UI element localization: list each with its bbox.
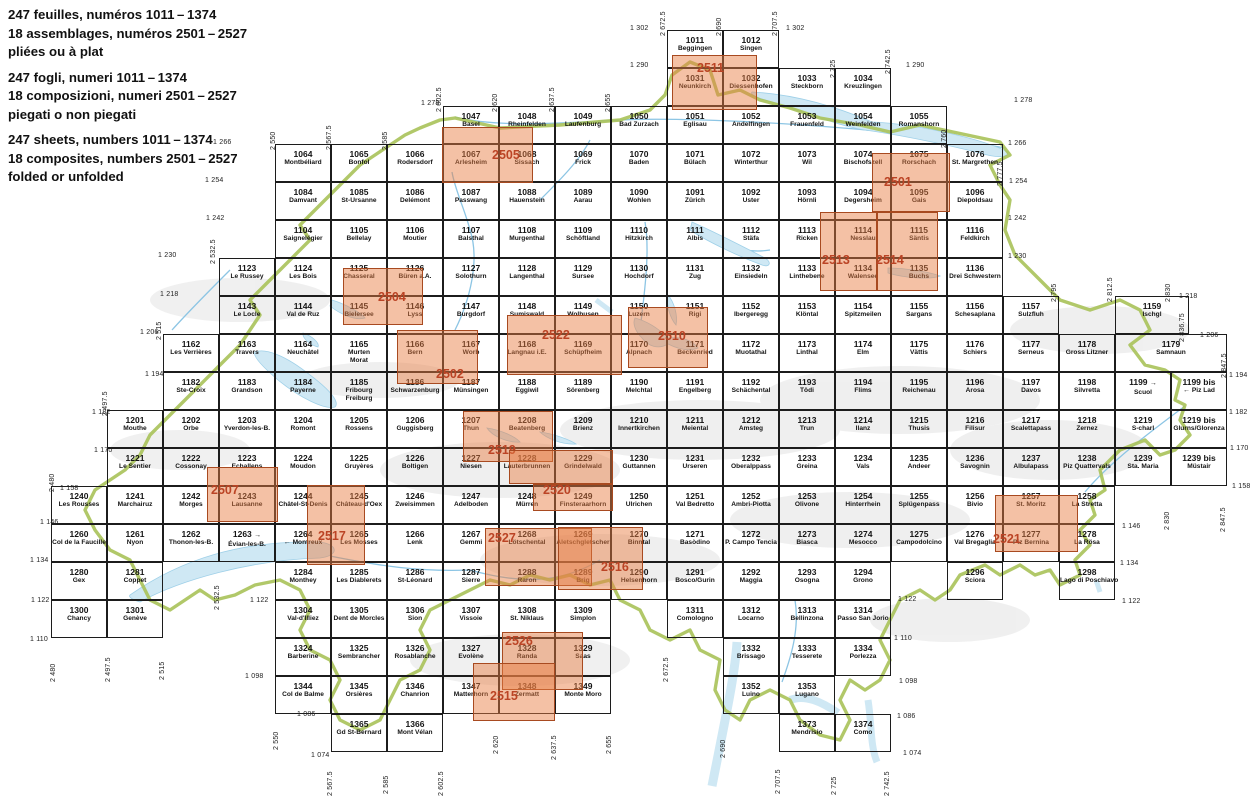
sheet-cell-1172: 1172Muotathal xyxy=(723,334,779,372)
sheet-number: 1326 xyxy=(388,643,442,653)
coordinate-label: 1 302 xyxy=(786,25,805,33)
composite-number-2515: 2515 xyxy=(490,690,518,702)
sheet-name: Dent de Morcles xyxy=(332,615,386,623)
sheet-cell-1353: 1353Lugano xyxy=(779,676,835,714)
sheet-number: 1284 xyxy=(276,567,330,577)
sheet-cell-1231: 1231Urseren xyxy=(667,448,723,486)
sheet-name: Zernez xyxy=(1060,425,1114,433)
sheet-number: 1144 xyxy=(276,301,330,311)
sheet-name: Guttannen xyxy=(612,463,666,471)
sheet-cell-1106: 1106Moutier xyxy=(387,220,443,258)
sheet-cell-1195: 1195Reichenau xyxy=(891,372,947,410)
sheet-name: Gruyères xyxy=(332,463,386,471)
sheet-cell-1206: 1206Guggisberg xyxy=(387,410,443,448)
sheet-number: 1231 xyxy=(668,453,722,463)
sheet-cell-1132: 1132Einsiedeln xyxy=(723,258,779,296)
legend-line: 247 fogli, numeri 1011 – 1374 xyxy=(8,69,318,88)
sheet-name: Mont Vélan xyxy=(388,729,442,737)
sheet-name: Scuol xyxy=(1116,389,1170,397)
sheet-cell-1174: 1174Elm xyxy=(835,334,891,372)
sheet-name: Wil xyxy=(780,159,834,167)
sheet-name: Val-d'Illiez xyxy=(276,615,330,623)
sheet-number: 1212 xyxy=(724,415,778,425)
sheet-cell-1211: 1211Meiental xyxy=(667,410,723,448)
sheet-number: 1256 xyxy=(948,491,1002,501)
sheet-cell-1192: 1192Schächental xyxy=(723,372,779,410)
coordinate-label: 2 515 xyxy=(159,661,167,680)
sheet-cell-1312: 1312Locarno xyxy=(723,600,779,638)
sheet-cell-1198: 1198Silvretta xyxy=(1059,372,1115,410)
sheet-number: 1237 xyxy=(1004,453,1058,463)
sheet-number: 1194 xyxy=(836,377,890,387)
sheet-cell-1128: 1128Langenthal xyxy=(499,258,555,296)
sheet-cell-1055: 1055Romanshorn xyxy=(891,106,947,144)
sheet-number: 1048 xyxy=(500,111,554,121)
sheet-name: Le Locle xyxy=(220,311,274,319)
sheet-number: 1089 xyxy=(556,187,610,197)
sheet-cell-1214: 1214Ilanz xyxy=(835,410,891,448)
sheet-name: Romont xyxy=(276,425,330,433)
sheet-name: Travers xyxy=(220,349,274,357)
sheet-name: Serneus xyxy=(1004,349,1058,357)
coordinate-label: 1 122 xyxy=(1122,598,1141,606)
sheet-name: Nyon xyxy=(108,539,162,547)
coordinate-label: 1 194 xyxy=(145,371,164,379)
sheet-cell-1105: 1105Bellelay xyxy=(331,220,387,258)
sheet-name: Les Bois xyxy=(276,273,330,281)
sheet-cell-1052: 1052Andelfingen xyxy=(723,106,779,144)
sheet-number: 1148 xyxy=(500,301,554,311)
sheet-name: Schesaplana xyxy=(948,311,1002,319)
sheet-cell-1178: 1178Gross Litzner xyxy=(1059,334,1115,372)
sheet-name: Silvretta xyxy=(1060,387,1114,395)
sheet-cell-1252: 1252Ambri-Piotta xyxy=(723,486,779,524)
sheet-name: Rossens xyxy=(332,425,386,433)
composite-2520 xyxy=(509,450,613,484)
sheet-cell-1176: 1176Schiers xyxy=(947,334,1003,372)
sheet-number: 1300 xyxy=(52,605,106,615)
sheet-number: 1304 xyxy=(276,605,330,615)
sheet-number: 1086 xyxy=(388,187,442,197)
sheet-name: Les Verrières xyxy=(164,349,218,357)
sheet-number: 1213 xyxy=(780,415,834,425)
sheet-name: MurtenMorat xyxy=(332,349,386,364)
sheet-name: Schächental xyxy=(724,387,778,395)
sheet-cell-1237: 1237Albulapass xyxy=(1003,448,1059,486)
coordinate-label: 2 532.5 xyxy=(210,239,218,264)
composite-number-2507: 2507 xyxy=(211,484,239,496)
coordinate-label: 1 122 xyxy=(898,596,917,604)
sheet-cell-1234: 1234Vals xyxy=(835,448,891,486)
sheet-name: Coppet xyxy=(108,577,162,585)
coordinate-label: 2 602.5 xyxy=(436,87,444,112)
sheet-number: 1365 xyxy=(332,719,386,729)
sheet-cell-1116: 1116Feldkirch xyxy=(947,220,1003,258)
sheet-number: 1218 xyxy=(1060,415,1114,425)
sheet-name: Évian-les-B. xyxy=(220,541,274,549)
coordinate-label: 1 134 xyxy=(1120,560,1139,568)
sheet-number: 1076 xyxy=(948,149,1002,159)
sheet-number: 1050 xyxy=(612,111,666,121)
sheet-cell-1129: 1129Sursee xyxy=(555,258,611,296)
sheet-number: 1162 xyxy=(164,339,218,349)
sheet-name: Beggingen xyxy=(668,45,722,53)
sheet-cell-1280: 1280Gex xyxy=(51,562,107,600)
sheet-cell-1076: 1076St. Margrethen xyxy=(947,144,1003,182)
sheet-number: 1154 xyxy=(836,301,890,311)
sheet-cell-1070: 1070Baden xyxy=(611,144,667,182)
composite-number-2505: 2505 xyxy=(492,149,520,161)
coordinate-label: 2 480 xyxy=(49,473,57,492)
sheet-number: 1374 xyxy=(836,719,890,729)
coordinate-label: 2 725 xyxy=(831,776,839,795)
sheet-name: Niesen xyxy=(444,463,498,471)
sheet-number: 1034 xyxy=(836,73,890,83)
sheet-cell-1307: 1307Vissoie xyxy=(443,600,499,638)
sheet-number: 1333 xyxy=(780,643,834,653)
composite-number-2502: 2502 xyxy=(436,368,464,380)
sheet-name: Stäfa xyxy=(724,235,778,243)
composite-number-2517: 2517 xyxy=(318,530,346,542)
sheet-name: Bülach xyxy=(668,159,722,167)
sheet-cell-1344: 1344Col de Balme xyxy=(275,676,331,714)
sheet-name: Mesocco xyxy=(836,539,890,547)
sheet-cell-1300: 1300Chancy xyxy=(51,600,107,638)
sheet-number: 1164 xyxy=(276,339,330,349)
sheet-cell-1034: 1034Kreuzlingen xyxy=(835,68,891,106)
sheet-name: Moutier xyxy=(388,235,442,243)
sheet-number: 1203 xyxy=(220,415,274,425)
sheet-number: 1253 xyxy=(780,491,834,501)
sheet-name: Ilanz xyxy=(836,425,890,433)
sheet-name: Sion xyxy=(388,615,442,623)
sheet-number: 1155 xyxy=(892,301,946,311)
sheet-number: 1152 xyxy=(724,301,778,311)
sheet-name: Frauenfeld xyxy=(780,121,834,129)
sheet-number: 1366 xyxy=(388,719,442,729)
sheet-number: 1104 xyxy=(276,225,330,235)
sheet-cell-1293: 1293Osogna xyxy=(779,562,835,600)
sheet-name: Le Sentier xyxy=(108,463,162,471)
sheet-cell-1053: 1053Frauenfeld xyxy=(779,106,835,144)
sheet-name: Guggisberg xyxy=(388,425,442,433)
sheet-cell-1239-bis: 1239 bisMüstair xyxy=(1171,448,1227,486)
sheet-number: 1065 xyxy=(332,149,386,159)
sheet-cell-1199: 1199 →Scuol xyxy=(1115,372,1171,410)
sheet-number: 1195 xyxy=(892,377,946,387)
sheet-cell-1230: 1230Guttannen xyxy=(611,448,667,486)
composite-number-2522: 2522 xyxy=(542,329,570,341)
sheet-number: 1327 xyxy=(444,643,498,653)
sheet-number: 1112 xyxy=(724,225,778,235)
sheet-name: Payerne xyxy=(276,387,330,395)
sheet-name: Hörnli xyxy=(780,197,834,205)
sheet-number: 1313 xyxy=(780,605,834,615)
sheet-name: Grandson xyxy=(220,387,274,395)
sheet-number: 1132 xyxy=(724,263,778,273)
sheet-name: Einsiedeln xyxy=(724,273,778,281)
sheet-cell-1087: 1087Passwang xyxy=(443,182,499,220)
sheet-number: 1344 xyxy=(276,681,330,691)
sheet-name: Melchtal xyxy=(612,387,666,395)
coordinate-label: 1 218 xyxy=(1179,293,1198,301)
sheet-number: 1314 xyxy=(836,605,890,615)
sheet-cell-1305: 1305Dent de Morcles xyxy=(331,600,387,638)
sheet-cell-1185: 1185FribourgFreiburg xyxy=(331,372,387,410)
sheet-number: 1197 xyxy=(1004,377,1058,387)
sheet-cell-1130: 1130Hochdorf xyxy=(611,258,667,296)
sheet-cell-1247: 1247Adelboden xyxy=(443,486,499,524)
sheet-name: Frick xyxy=(556,159,610,167)
coordinate-label: 2 742.5 xyxy=(884,771,892,796)
sheet-number: 1185 xyxy=(332,377,386,387)
sheet-cell-1311: 1311Comologno xyxy=(667,600,723,638)
coordinate-label: 1 146 xyxy=(40,519,59,527)
sheet-name: Murgenthal xyxy=(500,235,554,243)
sheet-name: St-Léonard xyxy=(388,577,442,585)
sheet-name: Bivio xyxy=(948,501,1002,509)
sheet-name: Neuchâtel xyxy=(276,349,330,357)
legend-line: folded or unfolded xyxy=(8,168,318,187)
sheet-number: 1202 xyxy=(164,415,218,425)
sheet-cell-1306: 1306Sion xyxy=(387,600,443,638)
sheet-number: 1136 xyxy=(948,263,1002,273)
sheet-cell-1033: 1033Steckborn xyxy=(779,68,835,106)
sheet-name: Comologno xyxy=(668,615,722,623)
sheet-cell-1291: 1291Bosco/Gurin xyxy=(667,562,723,600)
sheet-cell-1173: 1173Linthal xyxy=(779,334,835,372)
legend-line: 18 assemblages, numéros 2501 – 2527 xyxy=(8,25,318,44)
sheet-name: Thusis xyxy=(892,425,946,433)
sheet-cell-1218: 1218Zernez xyxy=(1059,410,1115,448)
sheet-cell-1281: 1281Coppet xyxy=(107,562,163,600)
sheet-number: 1247 xyxy=(444,491,498,501)
sheet-number: 1239 bis xyxy=(1172,453,1226,463)
sheet-number: 1280 xyxy=(52,567,106,577)
sheet-number: 1223 xyxy=(220,453,274,463)
sheet-cell-1088: 1088Hauenstein xyxy=(499,182,555,220)
coordinate-label: 2 847.5 xyxy=(1220,507,1228,532)
sheet-cell-1159: 1159Ischgl xyxy=(1115,296,1189,334)
sheet-name: Osogna xyxy=(780,577,834,585)
sheet-name: Arosa xyxy=(948,387,1002,395)
sheet-number: 1191 xyxy=(668,377,722,387)
sheet-name: Mendrisio xyxy=(780,729,834,737)
sheet-cell-1219-bis: 1219 bisGlurns/Glorenza xyxy=(1171,410,1227,448)
sheet-cell-1332: 1332Brissago xyxy=(723,638,779,676)
sheet-number: 1085 xyxy=(332,187,386,197)
sheet-number: 1111 xyxy=(668,225,722,235)
sheet-cell-1274: 1274Mesocco xyxy=(835,524,891,562)
coordinate-label: 2 655 xyxy=(605,93,613,112)
sheet-name: Passo San Jorio xyxy=(836,615,890,623)
sheet-name: Elm xyxy=(836,349,890,357)
sheet-name: Sursee xyxy=(556,273,610,281)
sheet-name: Gross Litzner xyxy=(1060,349,1114,357)
sheet-cell-1314: 1314Passo San Jorio xyxy=(835,600,891,638)
sheet-name: Bad Zurzach xyxy=(612,121,666,129)
sheet-name: Chanrion xyxy=(388,691,442,699)
sheet-name: Luino xyxy=(724,691,778,699)
sheet-cell-1089: 1089Aarau xyxy=(555,182,611,220)
legend-line: piegati o non piegati xyxy=(8,106,318,125)
sheet-name: Flims xyxy=(836,387,890,395)
coordinate-label: 1 266 xyxy=(1008,140,1027,148)
sheet-number: 1225 xyxy=(332,453,386,463)
sheet-number: 1109 xyxy=(556,225,610,235)
sheet-number: 1192 xyxy=(724,377,778,387)
sheet-number: 1093 xyxy=(780,187,834,197)
sheet-cell-1253: 1253Olivone xyxy=(779,486,835,524)
sheet-cell-1069: 1069Frick xyxy=(555,144,611,182)
sheet-number: 1236 xyxy=(948,453,1002,463)
sheet-cell-1235: 1235Andeer xyxy=(891,448,947,486)
coordinate-label: 2 760 xyxy=(941,129,949,148)
sheet-number: 1107 xyxy=(444,225,498,235)
composite-number-2501: 2501 xyxy=(884,176,912,188)
sheet-number: 1325 xyxy=(332,643,386,653)
sheet-number: 1274 xyxy=(836,529,890,539)
sheet-cell-1193: 1193Tödi xyxy=(779,372,835,410)
coordinate-label: 2 742.5 xyxy=(885,49,893,74)
sheet-name: FribourgFreiburg xyxy=(332,387,386,402)
sheet-cell-1190: 1190Melchtal xyxy=(611,372,667,410)
coordinate-label: 1 254 xyxy=(1009,178,1028,186)
sheet-number: 1178 xyxy=(1060,339,1114,349)
composite-number-2527: 2527 xyxy=(488,532,516,544)
sheet-number: 1241 xyxy=(108,491,162,501)
coordinate-label: 2 707.5 xyxy=(775,769,783,794)
sheet-number: 1211 xyxy=(668,415,722,425)
sheet-name: Andeer xyxy=(892,463,946,471)
sheet-cell-1065: 1065Bonfol xyxy=(331,144,387,182)
sheet-cell-1324: 1324Barberine xyxy=(275,638,331,676)
legend-line: 247 feuilles, numéros 1011 – 1374 xyxy=(8,6,318,25)
sheet-cell-1085: 1085St-Ursanne xyxy=(331,182,387,220)
sheet-cell-1313: 1313Bellinzona xyxy=(779,600,835,638)
sheet-name: Ischgl xyxy=(1116,311,1188,319)
composite-number-2516: 2516 xyxy=(601,561,629,573)
sheet-cell-1286: 1286St-Léonard xyxy=(387,562,443,600)
sheet-number: 1224 xyxy=(276,453,330,463)
sheet-number: 1182 xyxy=(164,377,218,387)
sheet-name: Lenk xyxy=(388,539,442,547)
sheet-cell-1091: 1091Zürich xyxy=(667,182,723,220)
sheet-cell-1273: 1273Biasca xyxy=(779,524,835,562)
sheet-cell-1224: 1224Moudon xyxy=(275,448,331,486)
sheet-number: 1206 xyxy=(388,415,442,425)
sheet-cell-1365: 1365Gd St-Bernard xyxy=(331,714,387,752)
sheet-number: 1127 xyxy=(444,263,498,273)
sheet-number: 1073 xyxy=(780,149,834,159)
sheet-cell-1251: 1251Val Bedretto xyxy=(667,486,723,524)
sheet-name: Porlezza xyxy=(836,653,890,661)
sheet-number: 1221 xyxy=(108,453,162,463)
sheet-number: 1190 xyxy=(612,377,666,387)
sheet-number: 1235 xyxy=(892,453,946,463)
sheet-cell-1096: 1096Diepoldsau xyxy=(947,182,1003,220)
sheet-name: Les Diablerets xyxy=(332,577,386,585)
sheet-cell-1260: 1260Col de la Faucille xyxy=(51,524,107,562)
sheet-name: Bellelay xyxy=(332,235,386,243)
sheet-number: 1308 xyxy=(500,605,554,615)
sheet-cell-1144: 1144Val de Ruz xyxy=(275,296,331,334)
sheet-name: Val de Ruz xyxy=(276,311,330,319)
sheet-cell-1221: 1221Le Sentier xyxy=(107,448,163,486)
coordinate-label: 1 230 xyxy=(158,252,177,260)
sheet-name: Evolène xyxy=(444,653,498,661)
legend-line: pliées ou à plat xyxy=(8,43,318,62)
sheet-cell-1155: 1155Sargans xyxy=(891,296,947,334)
sheet-cell-1352: 1352Luino xyxy=(723,676,779,714)
sheet-number: 1090 xyxy=(612,187,666,197)
sheet-name: Locarno xyxy=(724,615,778,623)
sheet-cell-1156: 1156Schesaplana xyxy=(947,296,1003,334)
sheet-name: Oberalppass xyxy=(724,463,778,471)
sheet-name: Brienz xyxy=(556,425,610,433)
sheet-number: 1332 xyxy=(724,643,778,653)
coordinate-label: 2 637.5 xyxy=(549,87,557,112)
sheet-cell-1255: 1255Splügenpass xyxy=(891,486,947,524)
sheet-cell-1175: 1175Vättis xyxy=(891,334,947,372)
sheet-cell-1123: 1123Le Russey xyxy=(219,258,275,296)
sheet-cell-1298: 1298Lago di Poschiavo xyxy=(1059,562,1115,600)
composite-number-2513: 2513 xyxy=(822,254,850,266)
sheet-name: Mouthe xyxy=(108,425,162,433)
sheet-cell-1109: 1109Schöftland xyxy=(555,220,611,258)
sheet-number: 1272 xyxy=(724,529,778,539)
coordinate-label: 1 098 xyxy=(245,673,264,681)
sheet-number: 1273 xyxy=(780,529,834,539)
sheet-number: 1209 xyxy=(556,415,610,425)
sheet-number: 1251 xyxy=(668,491,722,501)
sheet-name: Winterthur xyxy=(724,159,778,167)
sheet-number: 1193 xyxy=(780,377,834,387)
sheet-number: 1296 xyxy=(948,567,1002,577)
sheet-name: Simplon xyxy=(556,615,610,623)
sheet-name: Trun xyxy=(780,425,834,433)
sheet-name: Schiers xyxy=(948,349,1002,357)
sheet-number: 1263 → xyxy=(220,529,274,541)
coordinate-label: 2 620 xyxy=(493,735,501,754)
sheet-name: ← Piz Lad xyxy=(1172,387,1226,395)
sheet-cell-1154: 1154Spitzmeilen xyxy=(835,296,891,334)
sheet-name: Drei Schwestern xyxy=(948,273,1002,281)
sheet-cell-1205: 1205Rossens xyxy=(331,410,387,448)
sheet-number: 1275 xyxy=(892,529,946,539)
coordinate-label: 2 515 xyxy=(156,321,164,340)
composite-number-2511: 2511 xyxy=(697,62,724,74)
sheet-cell-1092: 1092Uster xyxy=(723,182,779,220)
sheet-name: Aarau xyxy=(556,197,610,205)
sheet-cell-1301: 1301Genève xyxy=(107,600,163,638)
sheet-cell-1334: 1334Porlezza xyxy=(835,638,891,676)
sheet-cell-1191: 1191Engelberg xyxy=(667,372,723,410)
sheet-cell-1246: 1246Zweisimmen xyxy=(387,486,443,524)
sheet-name: Burgdorf xyxy=(444,311,498,319)
sheet-cell-1239: 1239Sta. Maria xyxy=(1115,448,1171,486)
sheet-name: Tödi xyxy=(780,387,834,395)
sheet-number: 1165 xyxy=(332,339,386,349)
sheet-number: 1071 xyxy=(668,149,722,159)
coordinate-label: 1 110 xyxy=(894,635,912,643)
sheet-cell-1071: 1071Bülach xyxy=(667,144,723,182)
sheet-cell-1073: 1073Wil xyxy=(779,144,835,182)
sheet-number: 1052 xyxy=(724,111,778,121)
sheet-cell-1285: 1285Les Diablerets xyxy=(331,562,387,600)
coordinate-label: 2 672.5 xyxy=(660,11,668,36)
sheet-number: 1153 xyxy=(780,301,834,311)
